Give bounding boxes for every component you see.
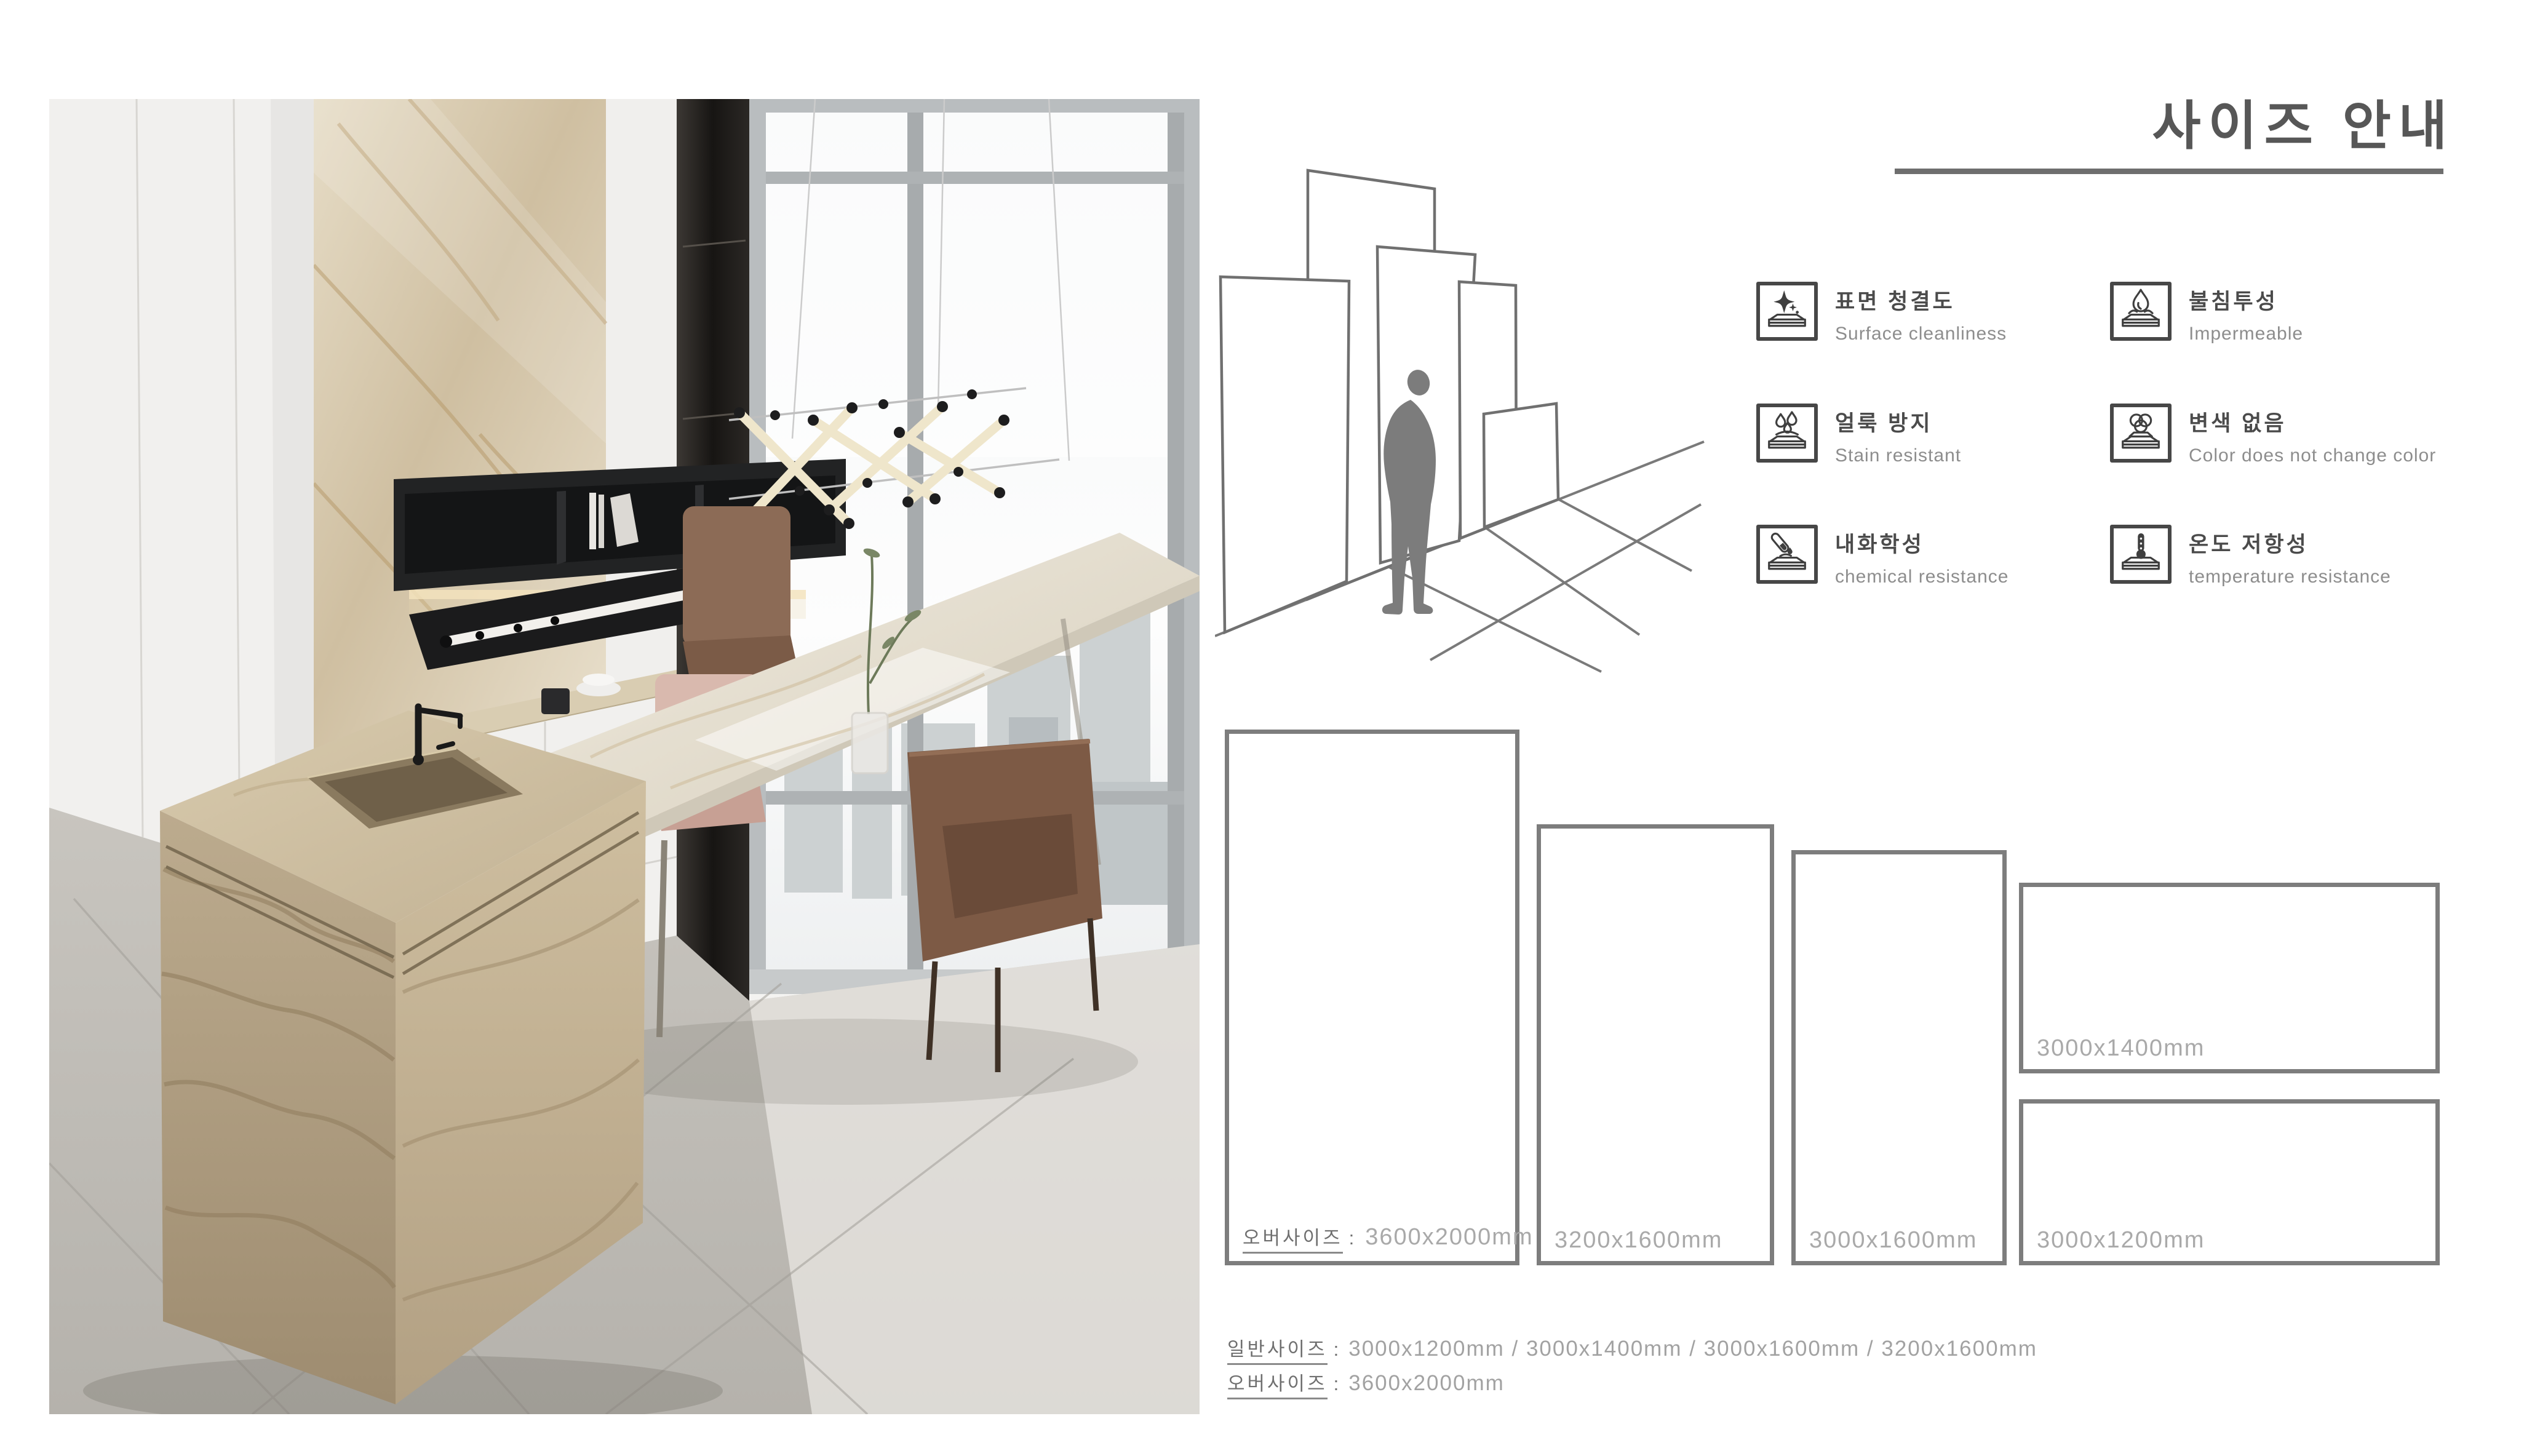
feature-ko-label: 변색 없음 xyxy=(2189,406,2436,437)
feature-ko-label: 표면 청결도 xyxy=(1835,284,2007,316)
size-value: 3200x1600mm xyxy=(1555,1227,1722,1254)
feature-temperature-resistance: 온도 저항성 temperature resistance xyxy=(2110,525,2391,587)
feature-ko-label: 얼룩 방지 xyxy=(1835,406,1961,437)
oversize-word: 오버사이즈 xyxy=(1227,1368,1328,1399)
oversize-row: 오버사이즈 : 3600x2000mm xyxy=(1227,1368,2037,1396)
feature-no-discoloration: 변색 없음 Color does not change color xyxy=(2110,404,2436,466)
feature-icon-box xyxy=(2110,525,2172,584)
size-box-3600x2000: 오버사이즈 : 3600x2000mm xyxy=(1225,730,1519,1265)
size-label: 3000x1400mm xyxy=(2037,1035,2205,1062)
size-box-3200x1600: 3200x1600mm xyxy=(1537,824,1774,1265)
stain-drops-slab-icon xyxy=(1762,410,1812,456)
slab-scale-diagram xyxy=(1215,148,1719,714)
feature-en-label: Surface cleanliness xyxy=(1835,324,2007,344)
slab-scale-diagram-drawing xyxy=(1215,148,1719,714)
size-label: 3200x1600mm xyxy=(1555,1227,1722,1254)
feature-en-label: Stain resistant xyxy=(1835,445,1961,466)
cup xyxy=(541,688,570,714)
title-underline xyxy=(1895,169,2443,174)
slab-front-left xyxy=(1220,277,1349,632)
size-value: 3600x2000mm xyxy=(1365,1224,1533,1251)
normal-size-value: 3000x1200mm / 3000x1400mm / 3000x1600mm … xyxy=(1348,1337,2037,1361)
size-label: 3000x1600mm xyxy=(1809,1227,1977,1254)
size-value: 3000x1600mm xyxy=(1809,1227,1977,1254)
feature-en-label: Impermeable xyxy=(2189,324,2303,344)
size-box-3000x1200: 3000x1200mm xyxy=(2019,1099,2440,1265)
oversize-word: 오버사이즈 xyxy=(1243,1222,1343,1254)
feature-en-label: Color does not change color xyxy=(2189,445,2436,466)
feature-icon-box xyxy=(2110,404,2172,463)
feature-chemical-resistance: 내화학성 chemical resistance xyxy=(1756,525,2009,587)
feature-icon-box xyxy=(2110,282,2172,341)
test-tube-slab-icon xyxy=(1762,531,1812,578)
feature-icon-box xyxy=(1756,404,1818,463)
size-box-3000x1600: 3000x1600mm xyxy=(1791,850,2007,1265)
thermometer-slab-icon xyxy=(2116,531,2165,578)
feature-stain-resistant: 얼룩 방지 Stain resistant xyxy=(1756,404,1961,466)
feature-en-label: chemical resistance xyxy=(1835,567,2009,587)
oversize-colon: : xyxy=(1349,1227,1356,1249)
sparkle-slab-icon xyxy=(1762,288,1812,335)
book-spine xyxy=(589,493,596,549)
size-value: 3000x1200mm xyxy=(2037,1227,2205,1254)
kitchen-photo xyxy=(49,99,1200,1414)
feature-surface-cleanliness: 표면 청결도 Surface cleanliness xyxy=(1756,282,2007,344)
size-label: 오버사이즈 : 3600x2000mm xyxy=(1243,1222,1534,1254)
feature-en-label: temperature resistance xyxy=(2189,567,2391,587)
normal-size-colon: : xyxy=(1334,1339,1339,1361)
feature-ko-label: 내화학성 xyxy=(1835,527,2009,559)
size-label: 3000x1200mm xyxy=(2037,1227,2205,1254)
size-box-3000x1400: 3000x1400mm xyxy=(2019,883,2440,1073)
kitchen-photo-illustration xyxy=(49,99,1200,1414)
feature-ko-label: 온도 저항성 xyxy=(2189,527,2391,559)
normal-size-row: 일반사이즈 : 3000x1200mm / 3000x1400mm / 3000… xyxy=(1227,1334,2037,1362)
droplet-slab-icon xyxy=(2116,288,2165,335)
color-circles-slab-icon xyxy=(2116,410,2165,456)
oversize-colon: : xyxy=(1334,1373,1339,1395)
catalog-page: 사이즈 안내 xyxy=(0,0,2548,1456)
size-summary: 일반사이즈 : 3000x1200mm / 3000x1400mm / 3000… xyxy=(1227,1334,2037,1402)
page-title: 사이즈 안내 xyxy=(2152,82,2455,159)
feature-icon-box xyxy=(1756,282,1818,341)
normal-size-word: 일반사이즈 xyxy=(1227,1334,1328,1365)
slab-small xyxy=(1484,404,1558,527)
feature-impermeable: 불침투성 Impermeable xyxy=(2110,282,2303,344)
feature-icon-box xyxy=(1756,525,1818,584)
standing-slabs xyxy=(1220,170,1558,632)
oversize-value: 3600x2000mm xyxy=(1348,1371,1505,1396)
feature-ko-label: 불침투성 xyxy=(2189,284,2303,316)
size-value: 3000x1400mm xyxy=(2037,1035,2205,1062)
